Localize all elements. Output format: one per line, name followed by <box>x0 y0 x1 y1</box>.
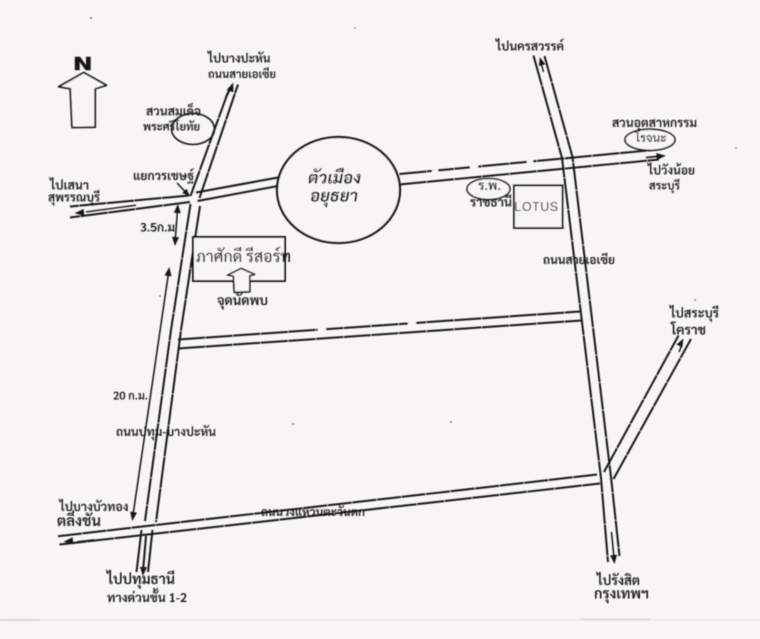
svg-text:LOTUS: LOTUS <box>514 200 558 214</box>
